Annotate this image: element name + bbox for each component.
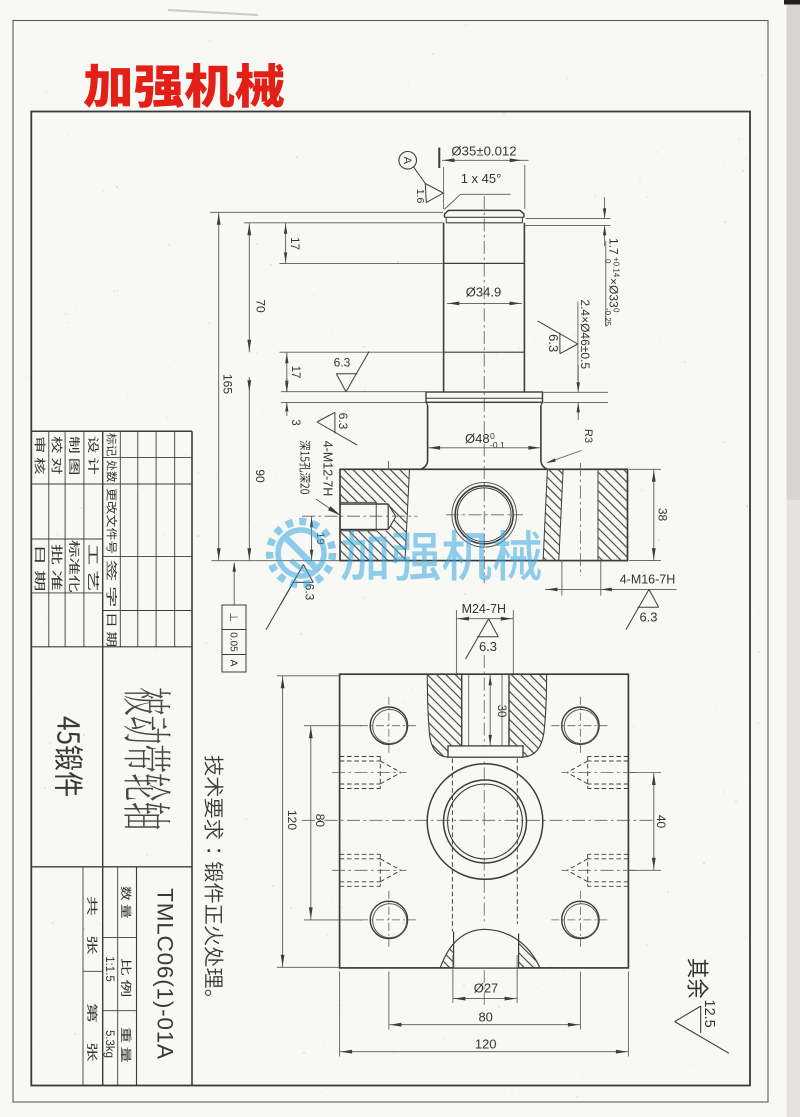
svg-text:A: A xyxy=(401,157,413,165)
svg-text:R3: R3 xyxy=(582,429,594,443)
svg-text:⊥: ⊥ xyxy=(227,612,239,622)
svg-text:70: 70 xyxy=(254,299,268,313)
svg-text:4-M16-7H: 4-M16-7H xyxy=(620,573,676,587)
svg-text:120: 120 xyxy=(285,810,299,830)
svg-text:1 x 45°: 1 x 45° xyxy=(461,171,502,186)
svg-text:-0.1: -0.1 xyxy=(490,440,505,450)
svg-text:2.4×Ø46±0.5: 2.4×Ø46±0.5 xyxy=(578,299,592,369)
svg-text:120: 120 xyxy=(475,1036,497,1051)
svg-text:80: 80 xyxy=(313,814,327,828)
svg-text:6.3: 6.3 xyxy=(479,639,497,654)
svg-text:12.5: 12.5 xyxy=(701,1000,717,1028)
svg-text:17: 17 xyxy=(288,237,300,250)
svg-text:0.05: 0.05 xyxy=(228,632,239,652)
svg-text:165: 165 xyxy=(220,374,234,394)
svg-text:Ø35±0.012: Ø35±0.012 xyxy=(451,143,516,158)
svg-text:40: 40 xyxy=(654,815,668,829)
svg-text:6.3: 6.3 xyxy=(336,413,350,430)
svg-text:-0.25: -0.25 xyxy=(603,308,612,327)
svg-text:1.7: 1.7 xyxy=(607,238,621,255)
svg-text:6.3: 6.3 xyxy=(639,610,657,625)
svg-text:6.3: 6.3 xyxy=(546,334,561,352)
svg-text:Ø34.9: Ø34.9 xyxy=(466,285,501,300)
svg-text:1.6: 1.6 xyxy=(414,189,426,204)
svg-text:80: 80 xyxy=(478,1009,492,1024)
svg-text:×Ø33: ×Ø33 xyxy=(607,278,621,308)
svg-text:17: 17 xyxy=(289,366,301,379)
svg-text:5.3kg: 5.3kg xyxy=(103,1030,115,1058)
svg-text:38: 38 xyxy=(655,508,669,522)
svg-text:1:1.5: 1:1.5 xyxy=(103,956,115,982)
svg-text:M24-7H: M24-7H xyxy=(462,602,506,616)
svg-text:Ø27: Ø27 xyxy=(474,980,499,995)
svg-text:A: A xyxy=(227,659,239,666)
svg-text:0: 0 xyxy=(603,259,612,264)
svg-text:4-M12-7H: 4-M12-7H xyxy=(321,441,335,497)
svg-text:30: 30 xyxy=(495,705,507,718)
svg-text:3: 3 xyxy=(289,419,301,425)
svg-text:Ø48: Ø48 xyxy=(465,431,490,446)
svg-text:6.3: 6.3 xyxy=(334,356,351,370)
svg-text:TMLC06(1)-01A: TMLC06(1)-01A xyxy=(153,888,178,1060)
svg-text:90: 90 xyxy=(253,469,267,483)
